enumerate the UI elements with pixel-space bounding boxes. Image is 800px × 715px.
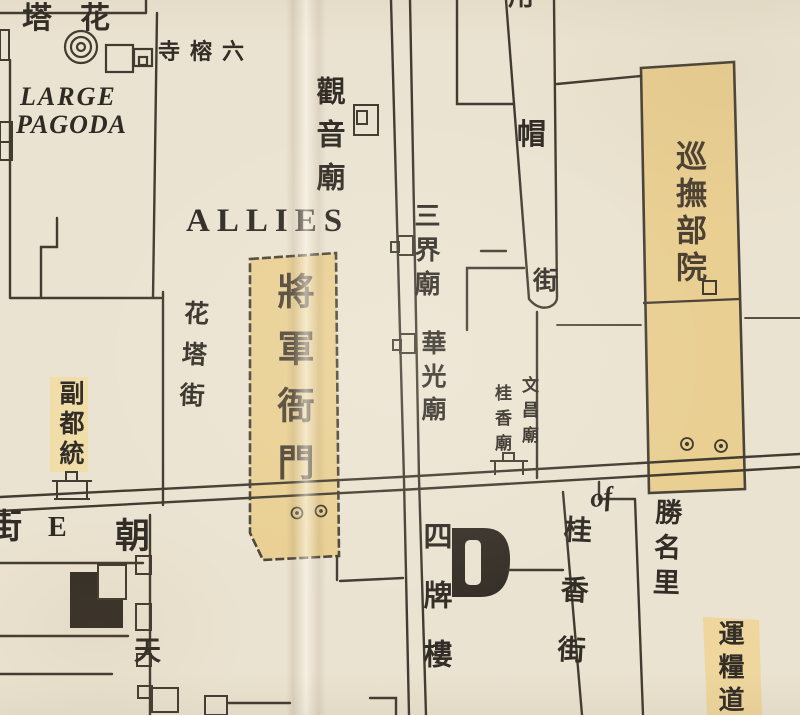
wenchang-temple-label: 文昌廟: [519, 376, 536, 451]
four-pailou-label: 四牌樓: [421, 521, 450, 698]
sanjie-temple-label: 三界廟: [412, 202, 438, 304]
map-canvas: [0, 0, 800, 715]
governor-yamen-label: 巡撫部院: [672, 140, 703, 288]
hat-street-bottom-char: 街: [533, 268, 558, 293]
allies-label: ALLIES: [186, 205, 349, 238]
guixiang-street-label: 桂香街: [553, 514, 590, 695]
huaguang-temple-label: 華光廟: [420, 330, 445, 429]
deputy-gate-icon: [52, 472, 92, 499]
six-banyan-temple-label: 六榕寺: [158, 42, 254, 64]
hat-street-mid-char: 帽: [517, 120, 546, 149]
historical-canton-map: 花塔 LARGE PAGODA 六榕寺 觀音廟 ALLIES 花塔街 將軍衙門 …: [0, 0, 800, 715]
street-e-letter: E: [48, 514, 67, 542]
hat-street-top-char: 用: [508, 0, 534, 10]
chaotian-street-char2: 天: [134, 638, 161, 665]
of-annotation: of: [589, 483, 614, 512]
chaotian-street-char1: 朝: [115, 520, 150, 555]
four-archway-building: [452, 528, 510, 597]
street-e-char: 街: [0, 510, 22, 544]
grain-transport-circuit-label: 運糧道: [716, 620, 742, 715]
shengming-li-label: 勝名里: [649, 498, 680, 604]
large-pagoda-cn-label: 花塔: [22, 4, 138, 34]
shengmingli-block-line: [599, 482, 643, 715]
guanyin-temple-icon: [354, 105, 378, 135]
guixiang-temple-label: 桂香廟: [492, 384, 509, 459]
guanyin-temple-label: 觀音廟: [314, 76, 343, 205]
temple-square-icon: [106, 45, 152, 72]
hat-street: [481, 0, 641, 308]
flower-pagoda-street-label: 花塔街: [177, 299, 208, 423]
four-archway-building-inner: [465, 540, 481, 585]
huaguang-shrine-icon: [393, 334, 415, 353]
deputy-commander-label: 副都統: [58, 380, 83, 470]
temple-block-corner: [467, 268, 524, 330]
building-outline: [98, 565, 126, 599]
large-pagoda-en-line1: LARGE: [20, 84, 117, 110]
general-yamen-label: 將軍衙門: [274, 272, 311, 500]
block-corner-north: [457, 0, 514, 104]
large-pagoda-en-line2: PAGODA: [16, 112, 127, 138]
